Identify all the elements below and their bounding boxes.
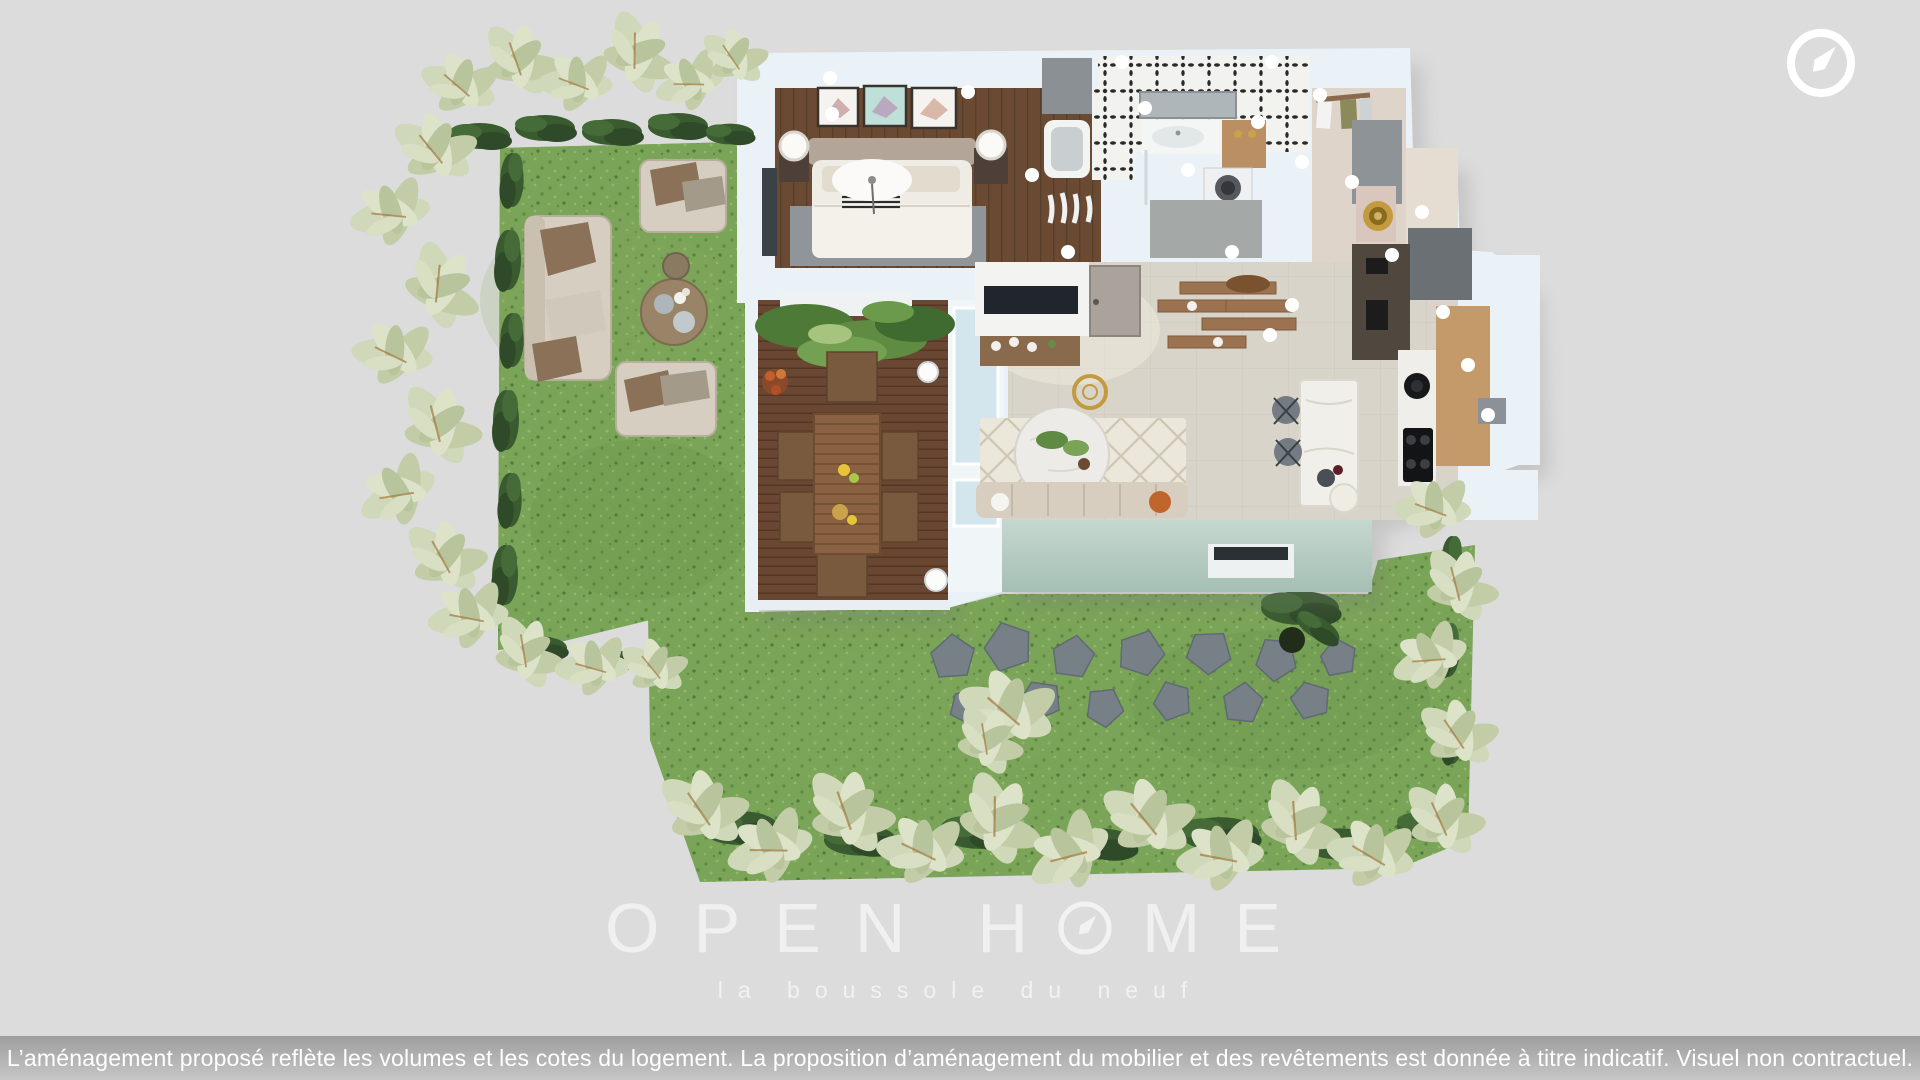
wine-bottle xyxy=(1333,465,1343,475)
watermark-compass-icon xyxy=(1056,899,1114,957)
floorplan-render: OPEN H ME la boussole du neuf L’aménagem… xyxy=(0,0,1920,1080)
wardrobe xyxy=(1042,58,1092,114)
nightstand-left xyxy=(779,132,809,182)
hob xyxy=(1403,428,1433,482)
disclaimer-text: L’aménagement proposé reflète les volume… xyxy=(7,1045,1913,1072)
watermark-word-h: H xyxy=(977,893,1062,963)
watermark-word-me: ME xyxy=(1142,893,1315,963)
dining-chair xyxy=(882,492,918,542)
watermark-title: OPEN H ME xyxy=(0,893,1920,963)
flower-pot xyxy=(762,369,788,395)
garden-armchair xyxy=(640,160,726,232)
facade-window xyxy=(1208,544,1294,578)
compass-button[interactable] xyxy=(1784,26,1858,100)
bedside-lamp xyxy=(977,131,1005,159)
south-facade xyxy=(1002,518,1372,592)
dining-chair xyxy=(827,352,877,402)
dining-chair xyxy=(1330,484,1358,512)
dark-cabinets xyxy=(1352,244,1410,360)
hedge-top xyxy=(416,0,779,150)
dining-chair xyxy=(780,492,816,542)
orange-cushion xyxy=(1149,491,1171,513)
deck-light xyxy=(918,362,938,382)
watermark-word-open: OPEN xyxy=(605,893,939,963)
sofa xyxy=(976,482,1188,518)
gold-mirror xyxy=(1363,201,1393,231)
garden-sofa xyxy=(525,216,611,382)
watermark-tagline: la boussole du neuf xyxy=(0,977,1920,1004)
tv xyxy=(984,286,1078,314)
nightstand-right xyxy=(974,131,1008,184)
dining-table xyxy=(814,414,880,554)
hedge-left xyxy=(332,102,527,669)
garden-coffee-table xyxy=(641,279,707,345)
bedroom-window xyxy=(762,168,777,256)
bedroom xyxy=(762,86,1041,268)
washbasin xyxy=(1142,120,1220,154)
deck-light xyxy=(925,569,947,591)
terrace xyxy=(755,292,955,600)
tall-unit xyxy=(1408,228,1472,300)
dining-chair xyxy=(778,432,814,480)
wall-art-frames xyxy=(818,86,956,128)
dining-chair xyxy=(882,432,918,480)
door xyxy=(1090,266,1140,336)
shower-floor xyxy=(1150,200,1262,258)
bedside-lamp xyxy=(780,132,808,160)
garden-side-table xyxy=(663,253,689,279)
compass-icon xyxy=(1784,26,1858,100)
lemons xyxy=(838,464,850,476)
tv-console xyxy=(980,336,1080,366)
terrace-left-wall xyxy=(745,300,759,612)
garden-loveseat xyxy=(616,362,716,436)
disclaimer-bar: L’aménagement proposé reflète les volume… xyxy=(0,1036,1920,1080)
watermark: OPEN H ME la boussole du neuf xyxy=(0,893,1920,1004)
mirror xyxy=(1140,92,1236,118)
